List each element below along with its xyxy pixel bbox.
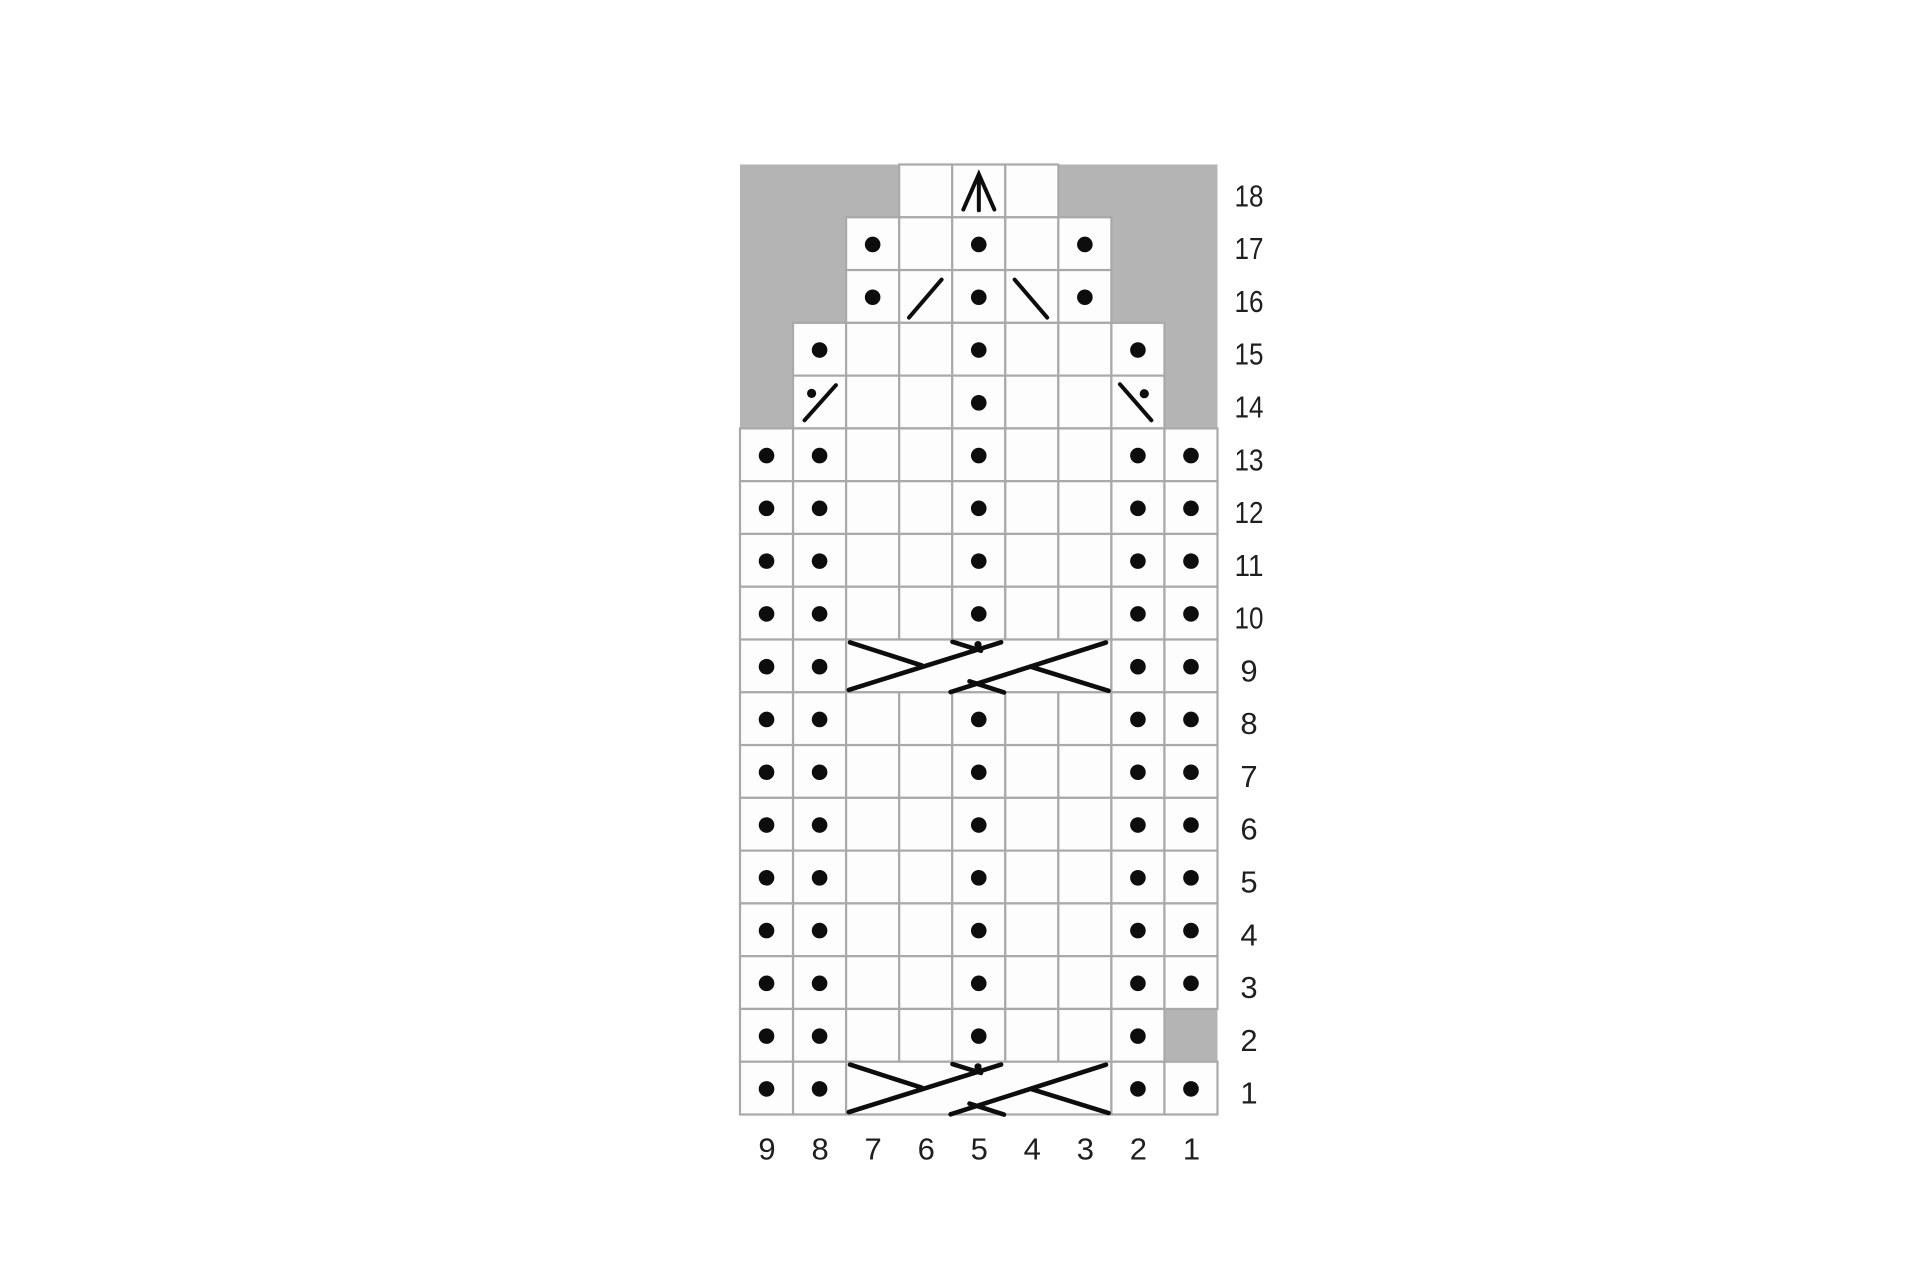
svg-text:4: 4 — [1024, 1132, 1041, 1167]
svg-text:4: 4 — [1240, 917, 1257, 952]
svg-text:8: 8 — [1240, 706, 1257, 741]
svg-text:5: 5 — [971, 1132, 988, 1167]
svg-text:6: 6 — [918, 1132, 935, 1167]
svg-text:7: 7 — [1240, 759, 1257, 794]
svg-text:17: 17 — [1235, 231, 1264, 266]
svg-text:13: 13 — [1235, 442, 1264, 477]
svg-text:2: 2 — [1130, 1132, 1147, 1167]
svg-text:6: 6 — [1240, 812, 1257, 847]
svg-text:15: 15 — [1235, 337, 1264, 372]
svg-text:14: 14 — [1235, 390, 1264, 425]
svg-text:10: 10 — [1235, 601, 1264, 636]
svg-text:9: 9 — [758, 1132, 775, 1167]
svg-text:2: 2 — [1240, 1023, 1257, 1058]
svg-text:5: 5 — [1240, 865, 1257, 900]
svg-text:18: 18 — [1235, 178, 1264, 213]
svg-text:3: 3 — [1077, 1132, 1094, 1167]
svg-text:12: 12 — [1235, 495, 1264, 530]
svg-text:3: 3 — [1240, 970, 1257, 1005]
svg-text:1: 1 — [1240, 1076, 1257, 1111]
svg-text:8: 8 — [811, 1132, 828, 1167]
svg-text:7: 7 — [865, 1132, 882, 1167]
svg-text:1: 1 — [1183, 1132, 1200, 1167]
svg-text:16: 16 — [1235, 284, 1264, 319]
svg-text:9: 9 — [1240, 653, 1257, 688]
svg-text:11: 11 — [1235, 548, 1264, 583]
